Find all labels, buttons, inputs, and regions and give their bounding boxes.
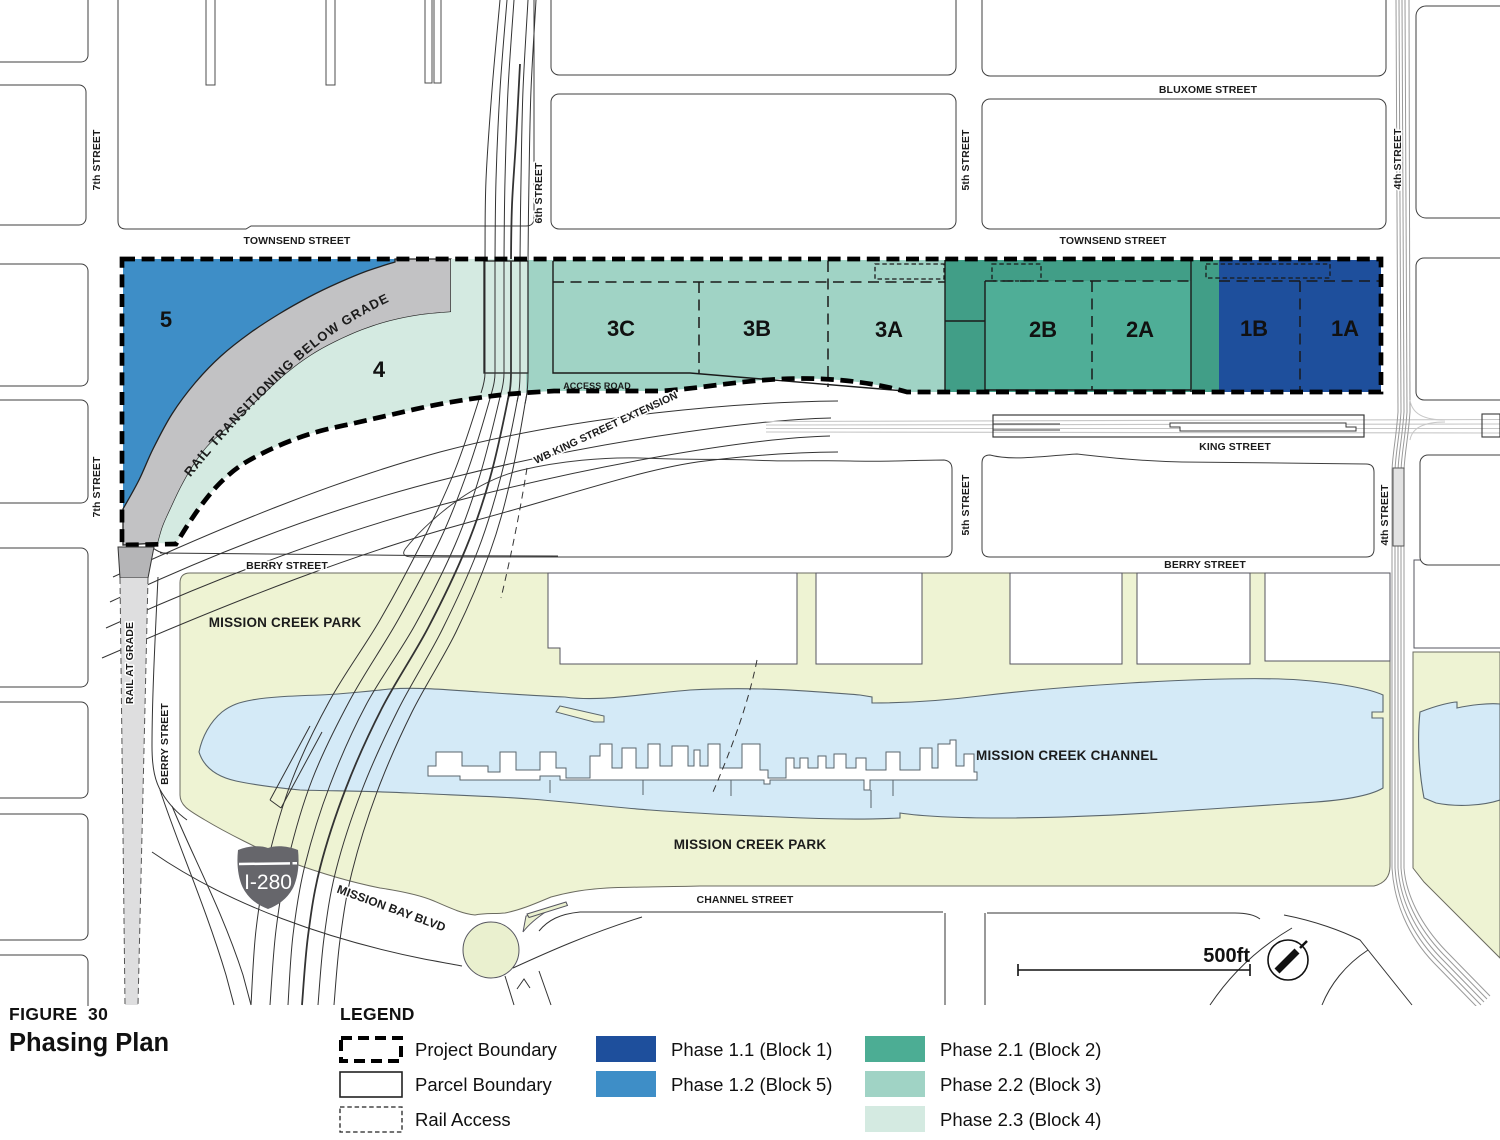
svg-text:1A: 1A [1331, 316, 1359, 341]
svg-text:500ft: 500ft [1203, 945, 1250, 967]
svg-text:Phase 2.1 (Block 2): Phase 2.1 (Block 2) [940, 1039, 1101, 1060]
svg-text:4th STREET: 4th STREET [1379, 484, 1391, 546]
svg-text:FIGURE 30: FIGURE 30 [9, 1004, 108, 1024]
svg-text:KING STREET: KING STREET [1199, 441, 1271, 453]
svg-text:Phase 2.3 (Block 4): Phase 2.3 (Block 4) [940, 1109, 1101, 1130]
svg-text:6th STREET: 6th STREET [533, 162, 545, 224]
svg-text:3A: 3A [875, 317, 903, 342]
svg-text:I-280: I-280 [244, 871, 292, 894]
svg-text:4th STREET: 4th STREET [1392, 128, 1404, 190]
svg-text:RAIL AT GRADE: RAIL AT GRADE [124, 622, 136, 704]
svg-text:MISSION CREEK PARK: MISSION CREEK PARK [674, 837, 827, 852]
svg-text:5: 5 [160, 307, 172, 332]
svg-text:TOWNSEND STREET: TOWNSEND STREET [244, 235, 351, 247]
svg-text:Phasing Plan: Phasing Plan [9, 1029, 169, 1057]
svg-text:Rail Access: Rail Access [415, 1109, 511, 1130]
svg-text:CHANNEL STREET: CHANNEL STREET [697, 894, 794, 906]
svg-text:5th STREET: 5th STREET [960, 474, 972, 536]
svg-text:Phase 1.2 (Block 5): Phase 1.2 (Block 5) [671, 1074, 832, 1095]
svg-text:BERRY STREET: BERRY STREET [1164, 559, 1246, 571]
svg-text:ACCESS ROAD: ACCESS ROAD [563, 381, 631, 391]
svg-text:1B: 1B [1240, 316, 1268, 341]
svg-text:5th STREET: 5th STREET [960, 129, 972, 191]
svg-text:Parcel Boundary: Parcel Boundary [415, 1074, 553, 1095]
svg-text:TOWNSEND STREET: TOWNSEND STREET [1060, 235, 1167, 247]
svg-text:3B: 3B [743, 316, 771, 341]
svg-text:2B: 2B [1029, 317, 1057, 342]
svg-text:2A: 2A [1126, 317, 1154, 342]
svg-text:7th STREET: 7th STREET [91, 456, 103, 518]
svg-text:3C: 3C [607, 316, 635, 341]
svg-text:7th STREET: 7th STREET [91, 129, 103, 191]
svg-text:Phase 2.2 (Block 3): Phase 2.2 (Block 3) [940, 1074, 1101, 1095]
svg-text:LEGEND: LEGEND [340, 1004, 415, 1024]
svg-text:BERRY STREET: BERRY STREET [246, 560, 328, 572]
svg-text:MISSION CREEK PARK: MISSION CREEK PARK [209, 615, 362, 630]
svg-text:4: 4 [373, 357, 386, 382]
svg-text:Phase 1.1 (Block 1): Phase 1.1 (Block 1) [671, 1039, 832, 1060]
svg-text:MISSION CREEK CHANNEL: MISSION CREEK CHANNEL [976, 748, 1158, 763]
svg-text:Project Boundary: Project Boundary [415, 1039, 558, 1060]
svg-text:BLUXOME STREET: BLUXOME STREET [1159, 84, 1258, 96]
svg-text:BERRY STREET: BERRY STREET [159, 703, 171, 785]
